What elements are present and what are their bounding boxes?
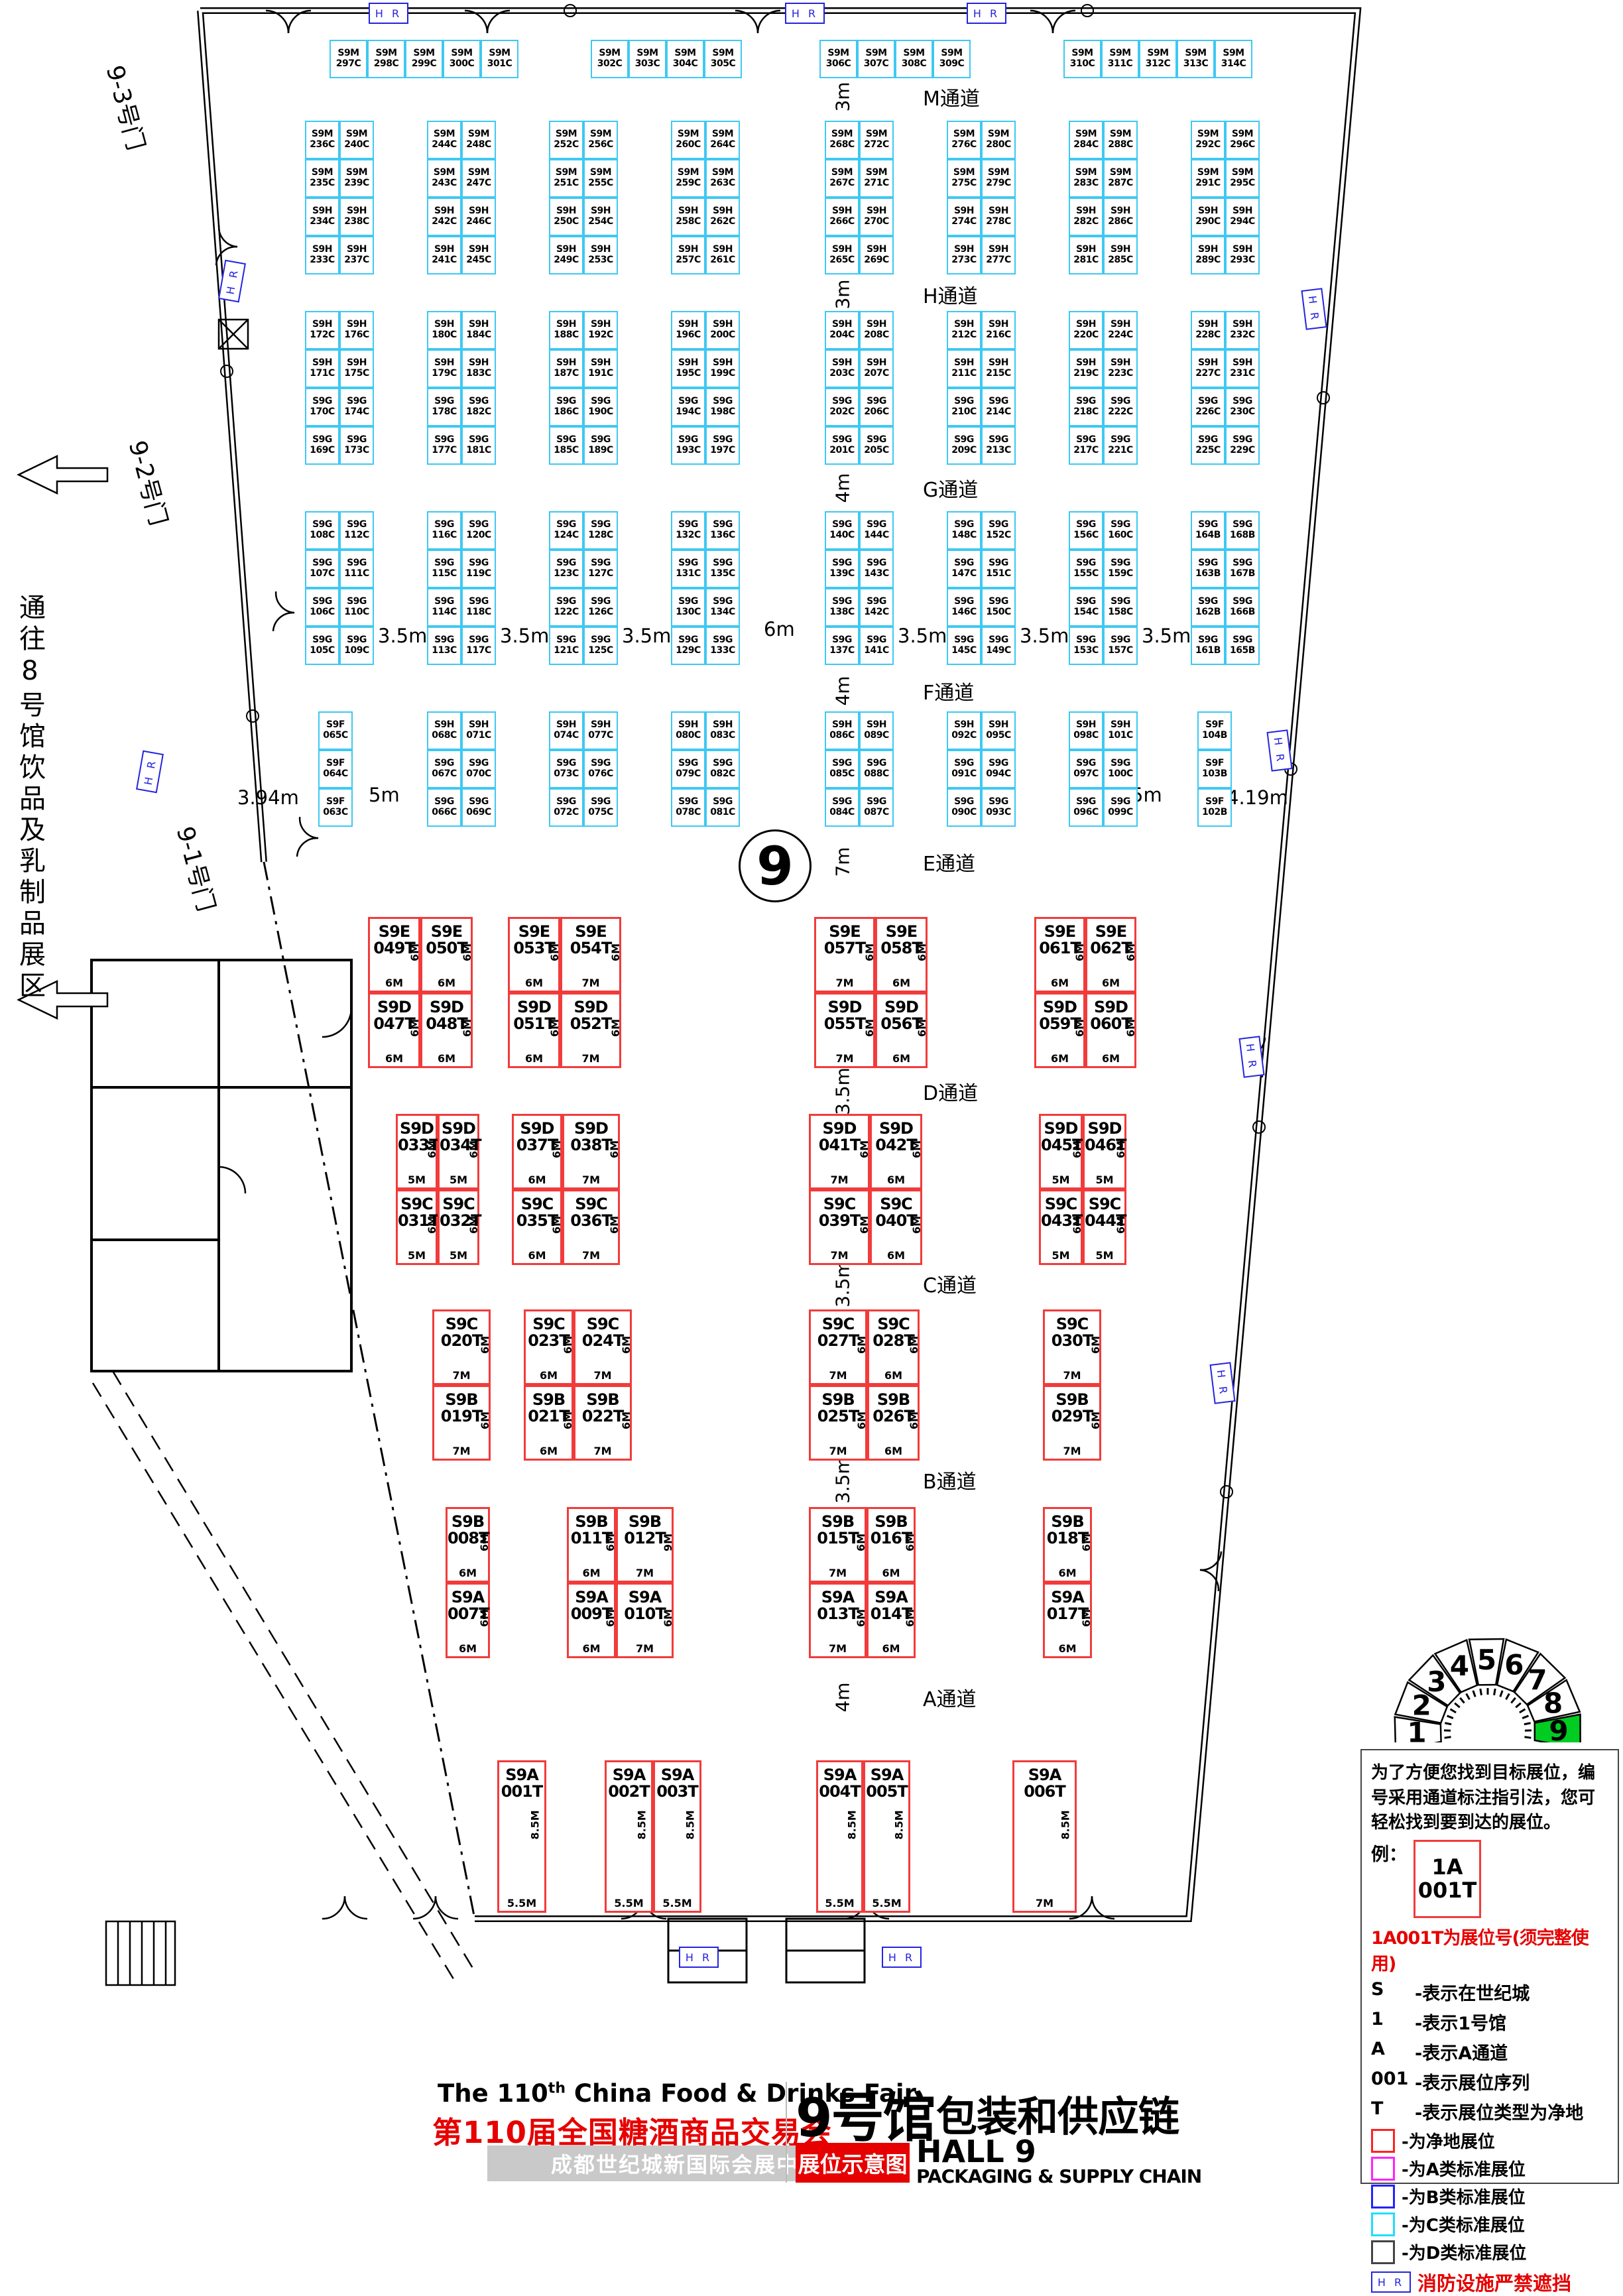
- booth-S9M-307C: S9M307C: [857, 40, 895, 78]
- dimension-label: 3.5m: [378, 625, 427, 647]
- aisle-width-label: 3m: [832, 279, 854, 309]
- booth-depth-label: 6M: [863, 1019, 876, 1037]
- booth-depth-label: 6M: [1071, 1216, 1083, 1234]
- booth-width-label: 7M: [811, 1567, 865, 1579]
- dimension-label: 3.5m: [898, 625, 947, 647]
- booth-S9M-240C: S9M240C: [339, 121, 374, 159]
- booth-depth-label: 6M: [662, 1609, 674, 1627]
- booth-S9C-043T: S9C043T6M5M: [1039, 1189, 1083, 1265]
- booth-S9G-130C: S9G130C: [671, 588, 705, 627]
- booth-S9M-297C: S9M297C: [330, 40, 367, 78]
- legend-code-row: 1-表示1号馆: [1371, 2009, 1608, 2035]
- booth-S9F-063C: S9F063C: [318, 788, 353, 827]
- booth-S9G-186C: S9G186C: [549, 388, 583, 426]
- booth-depth-label: 6M: [562, 1412, 574, 1429]
- booth-S9M-298C: S9M298C: [367, 40, 405, 78]
- booth-S9H-176C: S9H176C: [339, 311, 374, 349]
- booth-S9H-242C: S9H242C: [427, 198, 461, 236]
- booth-S9H-191C: S9H191C: [583, 349, 618, 388]
- booth-S9M-311C: S9M311C: [1101, 40, 1139, 78]
- booth-S9B-008T: S9B008T6M6M: [446, 1507, 490, 1583]
- booth-S9H-237C: S9H237C: [339, 236, 374, 274]
- booth-S9G-094C: S9G094C: [981, 750, 1016, 788]
- booth-S9C-036T: S9C036T6M7M: [562, 1189, 620, 1265]
- booth-width-label: 6M: [569, 1567, 614, 1579]
- legend-type-row: -为A类标准展位: [1371, 2156, 1608, 2181]
- booth-S9G-146C: S9G146C: [947, 588, 981, 627]
- booth-S9M-292C: S9M292C: [1191, 121, 1225, 159]
- booth-S9B-026T: S9B026T6M6M: [867, 1385, 920, 1461]
- booth-type-swatch: [1371, 2129, 1395, 2153]
- booth-width-label: 7M: [618, 1567, 672, 1579]
- booth-S9G-156C: S9G156C: [1069, 511, 1103, 550]
- booth-S9G-164B: S9G164B: [1191, 511, 1225, 550]
- booth-width-label: 7M: [1045, 1369, 1099, 1382]
- booth-S9M-300C: S9M300C: [443, 40, 481, 78]
- aisle-name-G: G通道: [923, 473, 978, 503]
- booth-S9B-018T: S9B018T6M6M: [1043, 1507, 1092, 1583]
- booth-width-label: 6M: [872, 1174, 920, 1186]
- booth-S9C-020T: S9C020T6M7M: [432, 1309, 491, 1385]
- booth-S9G-153C: S9G153C: [1069, 627, 1103, 665]
- booth-width-label: 7M: [575, 1445, 630, 1457]
- booth-depth-label: 6M: [478, 1609, 491, 1627]
- booth-S9G-197C: S9G197C: [705, 426, 740, 465]
- booth-S9M-284C: S9M284C: [1069, 121, 1103, 159]
- booth-depth-label: 6M: [461, 1019, 473, 1037]
- booth-depth-label: 6M: [478, 1534, 491, 1551]
- booth-S9H-257C: S9H257C: [671, 236, 705, 274]
- booth-S9G-090C: S9G090C: [947, 788, 981, 827]
- booth-S9D-042T: S9D042T6M6M: [870, 1114, 922, 1189]
- minimap-tick: [1480, 1689, 1482, 1695]
- booth-S9H-212C: S9H212C: [947, 311, 981, 349]
- fire-hydrant-icon: H R: [369, 3, 408, 24]
- booth-S9H-080C: S9H080C: [671, 711, 705, 750]
- booth-S9G-189C: S9G189C: [583, 426, 618, 465]
- legend-example-label: 例：: [1371, 1840, 1407, 1866]
- booth-S9B-025T: S9B025T6M7M: [809, 1385, 867, 1461]
- booth-S9H-238C: S9H238C: [339, 198, 374, 236]
- booth-S9G-067C: S9G067C: [427, 750, 461, 788]
- booth-S9H-216C: S9H216C: [981, 311, 1016, 349]
- booth-id: S9A006T: [1014, 1767, 1075, 1800]
- booth-S9G-132C: S9G132C: [671, 511, 705, 550]
- booth-S9G-136C: S9G136C: [705, 511, 740, 550]
- booth-depth-label: 6M: [916, 943, 928, 961]
- booth-S9M-306C: S9M306C: [819, 40, 857, 78]
- booth-S9M-251C: S9M251C: [549, 159, 583, 198]
- aisle-name-M: M通道: [923, 82, 980, 111]
- booth-S9H-219C: S9H219C: [1069, 349, 1103, 388]
- booth-S9G-122C: S9G122C: [549, 588, 583, 627]
- booth-S9A-007T: S9A007T6M6M: [446, 1583, 490, 1658]
- booth-depth-label: 6M: [855, 1412, 868, 1429]
- booth-S9G-163B: S9G163B: [1191, 550, 1225, 588]
- booth-S9A-014T: S9A014T6M6M: [867, 1583, 916, 1658]
- booth-S9D-047T: S9D047T6M6M: [368, 993, 420, 1068]
- booth-S9H-089C: S9H089C: [859, 711, 894, 750]
- corridor-to-hall8-label: 通往8号馆饮品及乳制品展区: [11, 593, 49, 1002]
- booth-S9A-001T: S9A001T8.5M5.5M: [497, 1760, 546, 1913]
- booth-S9B-011T: S9B011T6M6M: [567, 1507, 616, 1583]
- booth-width-label: 5.5M: [607, 1897, 651, 1909]
- booth-S9H-258C: S9H258C: [671, 198, 705, 236]
- booth-S9G-225C: S9G225C: [1191, 426, 1225, 465]
- booth-S9H-274C: S9H274C: [947, 198, 981, 236]
- booth-S9G-159C: S9G159C: [1103, 550, 1138, 588]
- legend-code-row: 001-表示展位序列: [1371, 2069, 1608, 2094]
- booth-width-label: 6M: [448, 1642, 488, 1655]
- booth-S9H-246C: S9H246C: [461, 198, 496, 236]
- booth-S9A-002T: S9A002T8.5M5.5M: [605, 1760, 653, 1913]
- booth-S9G-070C: S9G070C: [461, 750, 496, 788]
- booth-S9G-110C: S9G110C: [339, 588, 374, 627]
- booth-S9G-088C: S9G088C: [859, 750, 894, 788]
- booth-width-label: 6M: [448, 1567, 488, 1579]
- booth-width-label: 6M: [869, 1445, 918, 1457]
- booth-depth-label: 6M: [1073, 1019, 1086, 1037]
- booth-S9G-096C: S9G096C: [1069, 788, 1103, 827]
- booth-depth-label: 6M: [461, 943, 473, 961]
- booth-S9G-140C: S9G140C: [825, 511, 859, 550]
- booth-S9H-241C: S9H241C: [427, 236, 461, 274]
- dimension-label: 4.19m: [1227, 786, 1288, 809]
- booth-depth-label: 6M: [408, 1019, 421, 1037]
- booth-S9G-106C: S9G106C: [305, 588, 339, 627]
- booth-S9G-161B: S9G161B: [1191, 627, 1225, 665]
- booth-S9G-168B: S9G168B: [1225, 511, 1260, 550]
- legend-intro: 为了方便您找到目标展位，编号采用通道标注指引法，您可轻松找到要到达的展位。: [1371, 1761, 1608, 1836]
- legend-type-row: -为净地展位: [1371, 2128, 1608, 2153]
- booth-S9A-004T: S9A004T8.5M5.5M: [816, 1760, 863, 1913]
- booth-id: S9A002T: [607, 1767, 651, 1800]
- booth-width-label: 7M: [618, 1642, 672, 1655]
- booth-S9C-024T: S9C024T6M7M: [573, 1309, 632, 1385]
- booth-S9D-056T: S9D056T6M6M: [875, 993, 928, 1068]
- minimap-hall-number: 3: [1427, 1665, 1446, 1698]
- aisle-width-label: 4m: [832, 676, 854, 705]
- booth-width-label: 5.5M: [818, 1897, 861, 1909]
- booth-width-label: 6M: [877, 977, 926, 989]
- booth-width-label: 7M: [575, 1369, 630, 1382]
- booth-S9H-224C: S9H224C: [1103, 311, 1138, 349]
- minimap-hall-number: 6: [1504, 1649, 1524, 1681]
- booth-S9D-051T: S9D051T6M6M: [508, 993, 560, 1068]
- minimap-hall-number: 5: [1477, 1644, 1496, 1676]
- minimap-tick: [1506, 1694, 1509, 1700]
- booth-S9G-145C: S9G145C: [947, 627, 981, 665]
- minimap-tick: [1522, 1716, 1528, 1719]
- booth-depth-label: 6M: [1114, 1140, 1127, 1158]
- booth-depth-label: 6M: [548, 1019, 561, 1037]
- booth-depth-label: 6M: [467, 1216, 480, 1234]
- aisle-width-label: 3m: [832, 82, 854, 111]
- booth-depth-label: 6M: [620, 1336, 632, 1354]
- minimap-hall-number: 4: [1450, 1650, 1469, 1682]
- booth-S9M-309C: S9M309C: [933, 40, 971, 78]
- booth-S9G-182C: S9G182C: [461, 388, 496, 426]
- booth-S9H-262C: S9H262C: [705, 198, 740, 236]
- booth-width-label: 7M: [564, 1174, 618, 1186]
- minimap-tick: [1500, 1691, 1502, 1697]
- booth-S9G-116C: S9G116C: [427, 511, 461, 550]
- fire-hydrant-icon: H R: [882, 1947, 922, 1968]
- booth-width-label: 6M: [1045, 1642, 1090, 1655]
- booth-S9M-260C: S9M260C: [671, 121, 705, 159]
- booth-S9G-118C: S9G118C: [461, 588, 496, 627]
- booth-depth-label: 6M: [1073, 943, 1086, 961]
- booth-S9E-053T: S9E053T6M6M: [508, 917, 560, 993]
- booth-S9D-046T: S9D046T6M5M: [1083, 1114, 1126, 1189]
- booth-S9C-027T: S9C027T6M7M: [809, 1309, 867, 1385]
- booth-S9C-032T: S9C032T6M5M: [438, 1189, 479, 1265]
- booth-S9G-178C: S9G178C: [427, 388, 461, 426]
- booth-width-label: 6M: [1087, 1052, 1134, 1065]
- booth-S9G-087C: S9G087C: [859, 788, 894, 827]
- booth-S9H-289C: S9H289C: [1191, 236, 1225, 274]
- booth-S9A-006T: S9A006T8.5M7M: [1012, 1760, 1077, 1913]
- booth-type-swatch: [1371, 2157, 1395, 2181]
- booth-S9G-121C: S9G121C: [549, 627, 583, 665]
- booth-S9M-295C: S9M295C: [1225, 159, 1260, 198]
- booth-depth-label: 9M: [662, 1534, 674, 1551]
- booth-S9H-278C: S9H278C: [981, 198, 1016, 236]
- booth-S9H-195C: S9H195C: [671, 349, 705, 388]
- booth-S9M-243C: S9M243C: [427, 159, 461, 198]
- booth-width-label: 5.5M: [499, 1897, 544, 1909]
- booth-S9H-077C: S9H077C: [583, 711, 618, 750]
- booth-width-label: 6M: [510, 977, 558, 989]
- booth-S9G-167B: S9G167B: [1225, 550, 1260, 588]
- booth-depth-label: 6M: [479, 1336, 491, 1354]
- booth-S9H-294C: S9H294C: [1225, 198, 1260, 236]
- booth-width-label: 5.5M: [865, 1897, 908, 1909]
- booth-S9G-205C: S9G205C: [859, 426, 894, 465]
- booth-width-label: 7M: [811, 1445, 865, 1457]
- booth-width-label: 7M: [564, 1249, 618, 1262]
- booth-S9G-138C: S9G138C: [825, 588, 859, 627]
- booth-S9G-072C: S9G072C: [549, 788, 583, 827]
- booth-S9G-109C: S9G109C: [339, 627, 374, 665]
- booth-width-label: 7M: [434, 1445, 489, 1457]
- minimap-tick: [1511, 1698, 1515, 1703]
- booth-S9M-267C: S9M267C: [825, 159, 859, 198]
- booth-S9F-065C: S9F065C: [318, 711, 353, 750]
- booth-S9H-290C: S9H290C: [1191, 198, 1225, 236]
- booth-type-swatch: [1371, 2185, 1395, 2208]
- booth-S9H-192C: S9H192C: [583, 311, 618, 349]
- booth-S9H-083C: S9H083C: [705, 711, 740, 750]
- minimap-tick: [1524, 1723, 1531, 1724]
- booth-depth-label: 6M: [479, 1412, 491, 1429]
- booth-S9G-214C: S9G214C: [981, 388, 1016, 426]
- booth-S9M-235C: S9M235C: [305, 159, 339, 198]
- booth-S9H-270C: S9H270C: [859, 198, 894, 236]
- booth-S9C-023T: S9C023T6M6M: [524, 1309, 573, 1385]
- booth-width-label: 7M: [1045, 1445, 1099, 1457]
- booth-S9G-193C: S9G193C: [671, 426, 705, 465]
- booth-depth-label: 6M: [855, 1336, 868, 1354]
- booth-S9B-019T: S9B019T6M7M: [432, 1385, 491, 1461]
- booth-S9A-003T: S9A003T8.5M5.5M: [653, 1760, 701, 1913]
- legend-example-booth-row1: 1A: [1431, 1856, 1463, 1879]
- booth-S9G-113C: S9G113C: [427, 627, 461, 665]
- booth-S9B-012T: S9B012T9M7M: [616, 1507, 674, 1583]
- minimap-tick: [1460, 1698, 1464, 1703]
- booth-S9C-039T: S9C039T6M7M: [809, 1189, 870, 1265]
- booth-S9G-160C: S9G160C: [1103, 511, 1138, 550]
- booth-S9H-172C: S9H172C: [305, 311, 339, 349]
- booth-S9G-091C: S9G091C: [947, 750, 981, 788]
- booth-S9F-104B: S9F104B: [1197, 711, 1232, 750]
- booth-S9G-124C: S9G124C: [549, 511, 583, 550]
- booth-S9G-081C: S9G081C: [705, 788, 740, 827]
- booth-S9G-166B: S9G166B: [1225, 588, 1260, 627]
- booth-S9B-029T: S9B029T6M7M: [1043, 1385, 1101, 1461]
- booth-S9H-215C: S9H215C: [981, 349, 1016, 388]
- booth-S9G-127C: S9G127C: [583, 550, 618, 588]
- booth-S9M-248C: S9M248C: [461, 121, 496, 159]
- booth-S9G-201C: S9G201C: [825, 426, 859, 465]
- booth-S9M-271C: S9M271C: [859, 159, 894, 198]
- booth-depth-label: 6M: [908, 1336, 920, 1354]
- booth-S9M-288C: S9M288C: [1103, 121, 1138, 159]
- booth-S9H-282C: S9H282C: [1069, 198, 1103, 236]
- booth-S9M-239C: S9M239C: [339, 159, 374, 198]
- booth-S9H-095C: S9H095C: [981, 711, 1016, 750]
- booth-S9H-281C: S9H281C: [1069, 236, 1103, 274]
- booth-S9G-177C: S9G177C: [427, 426, 461, 465]
- booth-width-label: 6M: [526, 1445, 571, 1457]
- booth-S9M-283C: S9M283C: [1069, 159, 1103, 198]
- booth-S9G-143C: S9G143C: [859, 550, 894, 588]
- booth-S9G-093C: S9G093C: [981, 788, 1016, 827]
- booth-S9G-165B: S9G165B: [1225, 627, 1260, 665]
- booth-S9H-286C: S9H286C: [1103, 198, 1138, 236]
- booth-S9M-291C: S9M291C: [1191, 159, 1225, 198]
- booth-depth-label: 8.5M: [1059, 1810, 1071, 1839]
- booth-S9G-173C: S9G173C: [339, 426, 374, 465]
- booth-S9F-103B: S9F103B: [1197, 750, 1232, 788]
- booth-S9G-114C: S9G114C: [427, 588, 461, 627]
- booth-S9G-105C: S9G105C: [305, 627, 339, 665]
- dimension-label: 3.5m: [1142, 625, 1191, 647]
- booth-S9H-188C: S9H188C: [549, 311, 583, 349]
- booth-S9G-075C: S9G075C: [583, 788, 618, 827]
- booth-width-label: 6M: [569, 1642, 614, 1655]
- booth-depth-label: 6M: [1124, 943, 1137, 961]
- booth-S9D-037T: S9D037T6M6M: [512, 1114, 562, 1189]
- booth-S9G-085C: S9G085C: [825, 750, 859, 788]
- booth-S9G-108C: S9G108C: [305, 511, 339, 550]
- booth-S9G-158C: S9G158C: [1103, 588, 1138, 627]
- booth-S9H-098C: S9H098C: [1069, 711, 1103, 750]
- booth-S9G-137C: S9G137C: [825, 627, 859, 665]
- booth-depth-label: 6M: [904, 1609, 916, 1627]
- booth-depth-label: 6M: [548, 943, 561, 961]
- booth-width-label: 7M: [1014, 1897, 1075, 1909]
- booth-depth-label: 6M: [855, 1534, 867, 1551]
- minimap-hall-number: 9: [1549, 1715, 1568, 1742]
- booth-S9H-233C: S9H233C: [305, 236, 339, 274]
- hall-number-circle: 9: [739, 829, 811, 902]
- booth-width-label: 7M: [816, 977, 873, 989]
- booth-S9G-162B: S9G162B: [1191, 588, 1225, 627]
- booth-S9C-031T: S9C031T6M5M: [396, 1189, 438, 1265]
- booth-width-label: 5M: [440, 1174, 477, 1186]
- booth-S9G-147C: S9G147C: [947, 550, 981, 588]
- booth-S9G-069C: S9G069C: [461, 788, 496, 827]
- booth-depth-label: 8.5M: [684, 1810, 696, 1839]
- booth-S9G-084C: S9G084C: [825, 788, 859, 827]
- booth-depth-label: 6M: [1089, 1336, 1102, 1354]
- hall-name-cn: 9号馆: [796, 2075, 935, 2152]
- booth-width-label: 6M: [514, 1174, 560, 1186]
- booth-S9H-293C: S9H293C: [1225, 236, 1260, 274]
- hall-name-en: HALL 9: [916, 2134, 1036, 2169]
- booth-S9G-141C: S9G141C: [859, 627, 894, 665]
- aisle-width-label: 4m: [832, 473, 854, 503]
- booth-S9M-279C: S9M279C: [981, 159, 1016, 198]
- booth-S9G-206C: S9G206C: [859, 388, 894, 426]
- booth-width-label: 6M: [869, 1369, 918, 1382]
- booth-S9H-071C: S9H071C: [461, 711, 496, 750]
- booth-S9G-226C: S9G226C: [1191, 388, 1225, 426]
- booth-S9G-181C: S9G181C: [461, 426, 496, 465]
- booth-type-swatch: [1371, 2212, 1395, 2236]
- legend-type-row: -为D类标准展位: [1371, 2240, 1608, 2264]
- booth-S9D-034T: S9D034T6M5M: [438, 1114, 479, 1189]
- booth-depth-label: 8.5M: [892, 1810, 905, 1839]
- venue-overview-minimap: 123456789: [1326, 1570, 1618, 1742]
- booth-width-label: 6M: [510, 1052, 558, 1065]
- booth-S9H-227C: S9H227C: [1191, 349, 1225, 388]
- booth-S9A-009T: S9A009T6M6M: [567, 1583, 616, 1658]
- booth-width-label: 7M: [811, 1174, 868, 1186]
- booth-S9M-312C: S9M312C: [1139, 40, 1177, 78]
- booth-S9G-218C: S9G218C: [1069, 388, 1103, 426]
- booth-S9G-169C: S9G169C: [305, 426, 339, 465]
- booth-S9M-308C: S9M308C: [895, 40, 933, 78]
- booth-S9M-310C: S9M310C: [1063, 40, 1101, 78]
- booth-S9H-208C: S9H208C: [859, 311, 894, 349]
- booth-width-label: 5M: [1085, 1174, 1124, 1186]
- booth-S9M-299C: S9M299C: [405, 40, 443, 78]
- booth-depth-label: 6M: [858, 1216, 871, 1234]
- hall-theme-en: PACKAGING & SUPPLY CHAIN: [916, 2165, 1201, 2187]
- aisle-width-label: 4m: [832, 1682, 854, 1712]
- booth-S9D-052T: S9D052T6M7M: [560, 993, 621, 1068]
- booth-S9H-220C: S9H220C: [1069, 311, 1103, 349]
- booth-S9B-016T: S9B016T6M6M: [867, 1507, 916, 1583]
- booth-width-label: 7M: [811, 1642, 865, 1655]
- booth-S9M-301C: S9M301C: [481, 40, 518, 78]
- booth-S9G-174C: S9G174C: [339, 388, 374, 426]
- minimap-tick: [1494, 1689, 1496, 1695]
- booth-S9H-232C: S9H232C: [1225, 311, 1260, 349]
- booth-S9G-117C: S9G117C: [461, 627, 496, 665]
- aisle-width-label: 7m: [832, 847, 854, 876]
- booth-S9H-231C: S9H231C: [1225, 349, 1260, 388]
- booth-S9G-148C: S9G148C: [947, 511, 981, 550]
- booth-S9G-073C: S9G073C: [549, 750, 583, 788]
- title-block: The 110th China Food & Drinks Fair 第110届…: [424, 2077, 1339, 2191]
- booth-S9M-259C: S9M259C: [671, 159, 705, 198]
- booth-S9H-196C: S9H196C: [671, 311, 705, 349]
- booth-S9C-040T: S9C040T6M6M: [870, 1189, 922, 1265]
- legend-code-row: A-表示A通道: [1371, 2039, 1608, 2065]
